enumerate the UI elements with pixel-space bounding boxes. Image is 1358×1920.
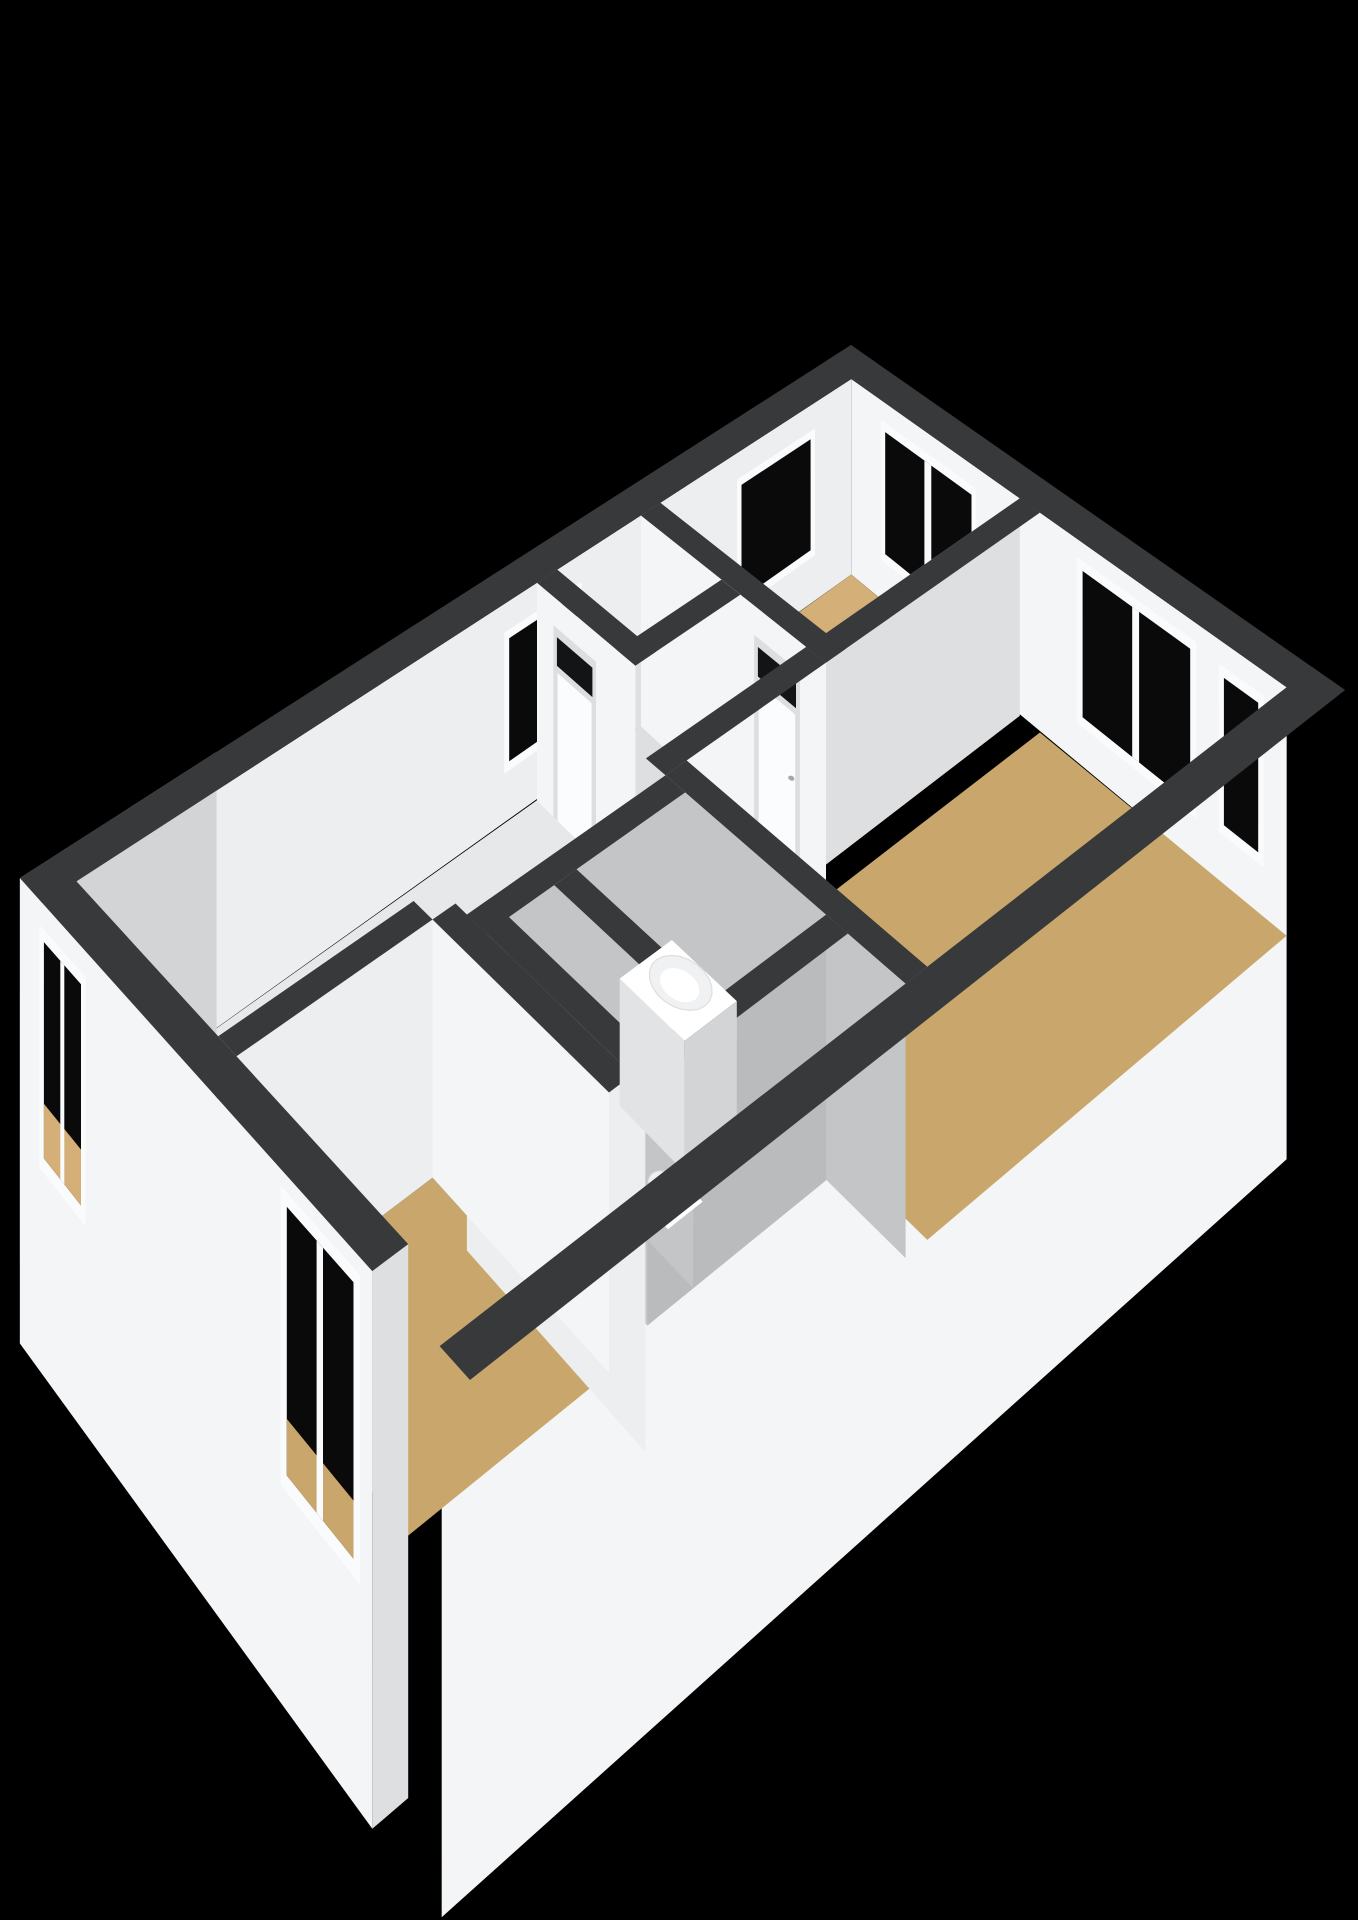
french-window-mullion	[317, 1241, 323, 1521]
rear-right-window-mullion	[1132, 607, 1139, 763]
floorplan-svg	[0, 0, 1358, 1920]
front-left-window-mullion	[60, 961, 64, 1185]
front-facade-end-face	[372, 1244, 408, 1829]
floorplan-3d-render	[0, 0, 1358, 1920]
